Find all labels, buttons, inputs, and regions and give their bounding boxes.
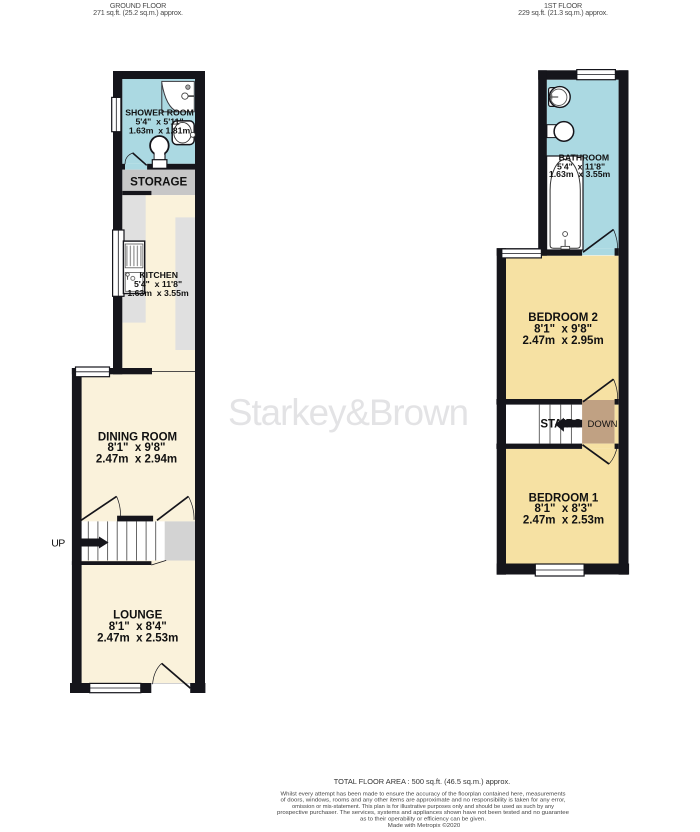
- svg-text:2.47m x 2.95m: 2.47m x 2.95m: [522, 335, 603, 347]
- svg-text:as to their operability or eff: as to their operability or efficiency ca…: [360, 817, 486, 823]
- svg-text:1.63m x 3.55m: 1.63m x 3.55m: [549, 169, 611, 179]
- svg-text:TOTAL FLOOR AREA : 500 sq.ft.: TOTAL FLOOR AREA : 500 sq.ft. (46.5 sq.m…: [334, 777, 511, 786]
- svg-text:Made with Metropix ©2020: Made with Metropix ©2020: [388, 822, 461, 829]
- svg-text:8'1" x 9'8": 8'1" x 9'8": [108, 442, 166, 454]
- svg-text:STORAGE: STORAGE: [130, 176, 187, 189]
- svg-text:2.47m x 2.53m: 2.47m x 2.53m: [523, 515, 604, 527]
- svg-text:prospective purchaser. The ser: prospective purchaser. The services, sys…: [277, 810, 569, 816]
- svg-text:omission or mis-statement. Thi: omission or mis-statement. This plan is …: [292, 804, 554, 810]
- svg-text:BEDROOM 2: BEDROOM 2: [528, 312, 598, 324]
- svg-text:LOUNGE: LOUNGE: [113, 610, 163, 622]
- svg-text:Starkey&Brown: Starkey&Brown: [228, 392, 468, 433]
- svg-text:UP: UP: [51, 537, 65, 549]
- svg-text:8'1" x 8'4": 8'1" x 8'4": [109, 621, 167, 633]
- svg-text:2.47m x 2.53m: 2.47m x 2.53m: [97, 632, 178, 644]
- svg-text:1.63m x 1.81m: 1.63m x 1.81m: [129, 125, 191, 135]
- svg-text:DOWN: DOWN: [587, 419, 617, 430]
- svg-text:229 sq.ft. (21.3 sq.m.) approx: 229 sq.ft. (21.3 sq.m.) approx.: [518, 8, 608, 17]
- svg-text:8'1" x 9'8": 8'1" x 9'8": [534, 324, 592, 336]
- svg-text:271 sq.ft. (25.2 sq.m.) approx: 271 sq.ft. (25.2 sq.m.) approx.: [93, 8, 183, 17]
- svg-text:2.47m x 2.94m: 2.47m x 2.94m: [96, 454, 177, 466]
- svg-text:Whilst every attempt has been: Whilst every attempt has been made to en…: [281, 791, 566, 797]
- svg-text:of doors, windows, rooms and a: of doors, windows, rooms and any other i…: [281, 798, 567, 804]
- svg-text:1.63m x 3.55m: 1.63m x 3.55m: [127, 288, 189, 298]
- svg-text:8'1" x 8'3": 8'1" x 8'3": [535, 503, 593, 515]
